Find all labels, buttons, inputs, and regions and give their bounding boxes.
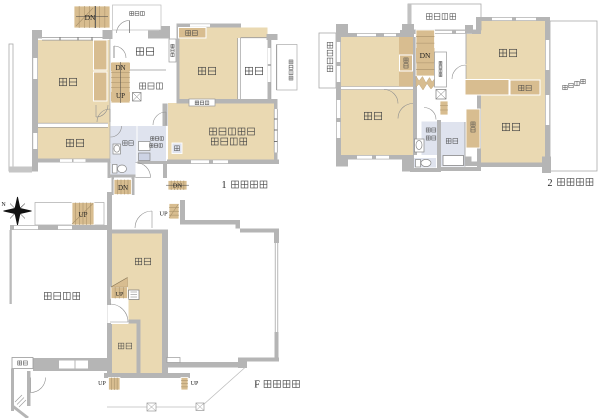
svg-text:UP: UP: [159, 211, 168, 218]
svg-text:UP: UP: [79, 211, 88, 219]
svg-text:DN: DN: [173, 183, 183, 190]
svg-text:2: 2: [548, 178, 553, 189]
svg-text:N: N: [1, 202, 6, 208]
svg-text:UP: UP: [191, 381, 199, 387]
svg-text:DN: DN: [85, 13, 96, 22]
svg-text:F: F: [254, 380, 260, 391]
svg-text:DN: DN: [420, 51, 431, 60]
svg-text:UP: UP: [116, 292, 124, 298]
svg-text:1: 1: [222, 180, 227, 191]
svg-text:UP: UP: [98, 381, 106, 387]
svg-text:DN: DN: [118, 184, 128, 192]
